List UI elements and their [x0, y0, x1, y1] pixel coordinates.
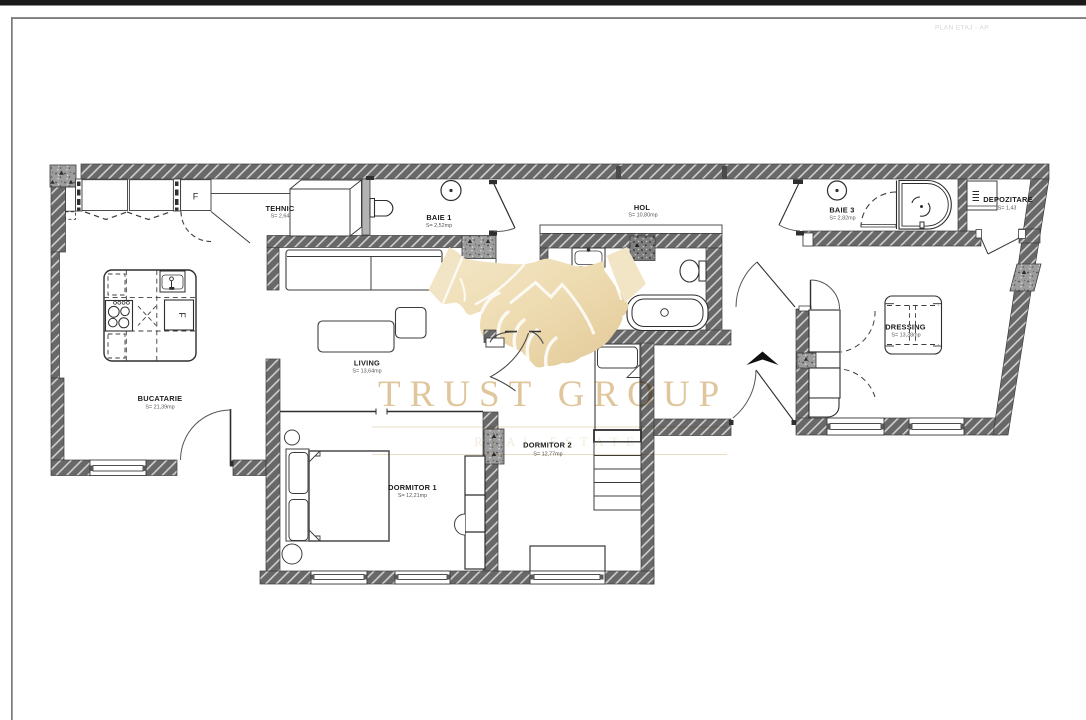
svg-text:TEHNIC: TEHNIC	[265, 204, 294, 213]
svg-text:S= 12,21mp: S= 12,21mp	[398, 493, 427, 499]
svg-text:S= 1,43: S= 1,43	[998, 206, 1017, 212]
svg-text:BUCATARIE: BUCATARIE	[138, 394, 183, 403]
svg-text:REAL ESTATE: REAL ESTATE	[474, 435, 641, 449]
svg-text:F: F	[193, 192, 199, 202]
svg-text:BAIE 3: BAIE 3	[829, 206, 854, 215]
svg-text:LIVING: LIVING	[354, 359, 380, 368]
svg-text:PLAN ETAJ - AP: PLAN ETAJ - AP	[935, 25, 989, 32]
svg-text:DEPOZITARE: DEPOZITARE	[983, 195, 1033, 204]
svg-text:S= 13,38mp: S= 13,38mp	[891, 333, 920, 339]
svg-text:HOL: HOL	[634, 203, 651, 212]
svg-text:S= 2,64: S= 2,64	[271, 214, 290, 220]
svg-text:TRUST GROUP: TRUST GROUP	[378, 374, 728, 415]
svg-text:S= 2,52mp: S= 2,52mp	[426, 223, 452, 229]
svg-text:BAIE 1: BAIE 1	[426, 213, 451, 222]
svg-text:S= 21,39mp: S= 21,39mp	[145, 405, 174, 411]
svg-text:DRESSING: DRESSING	[885, 323, 926, 332]
svg-text:F: F	[177, 312, 187, 318]
svg-text:S= 10,80mp: S= 10,80mp	[628, 213, 657, 219]
svg-text:DORMITOR 1: DORMITOR 1	[388, 483, 437, 492]
svg-text:S= 2,82mp: S= 2,82mp	[829, 216, 855, 222]
